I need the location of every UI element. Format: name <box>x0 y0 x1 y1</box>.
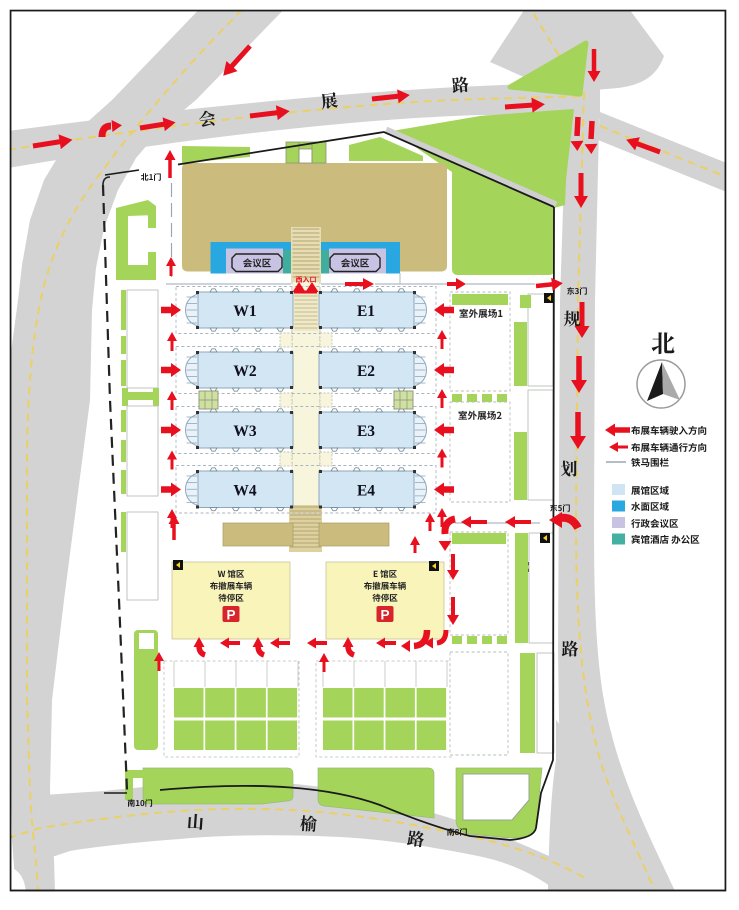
svg-text:E1: E1 <box>357 303 375 320</box>
svg-text:W4: W4 <box>233 482 257 499</box>
svg-text:P: P <box>226 608 235 623</box>
svg-text:P: P <box>380 608 389 623</box>
svg-text:W1: W1 <box>233 303 256 320</box>
svg-text:E2: E2 <box>357 363 375 380</box>
svg-text:E4: E4 <box>357 482 375 499</box>
svg-text:W3: W3 <box>233 423 257 440</box>
svg-text:W2: W2 <box>233 363 257 380</box>
svg-text:E3: E3 <box>357 423 375 440</box>
